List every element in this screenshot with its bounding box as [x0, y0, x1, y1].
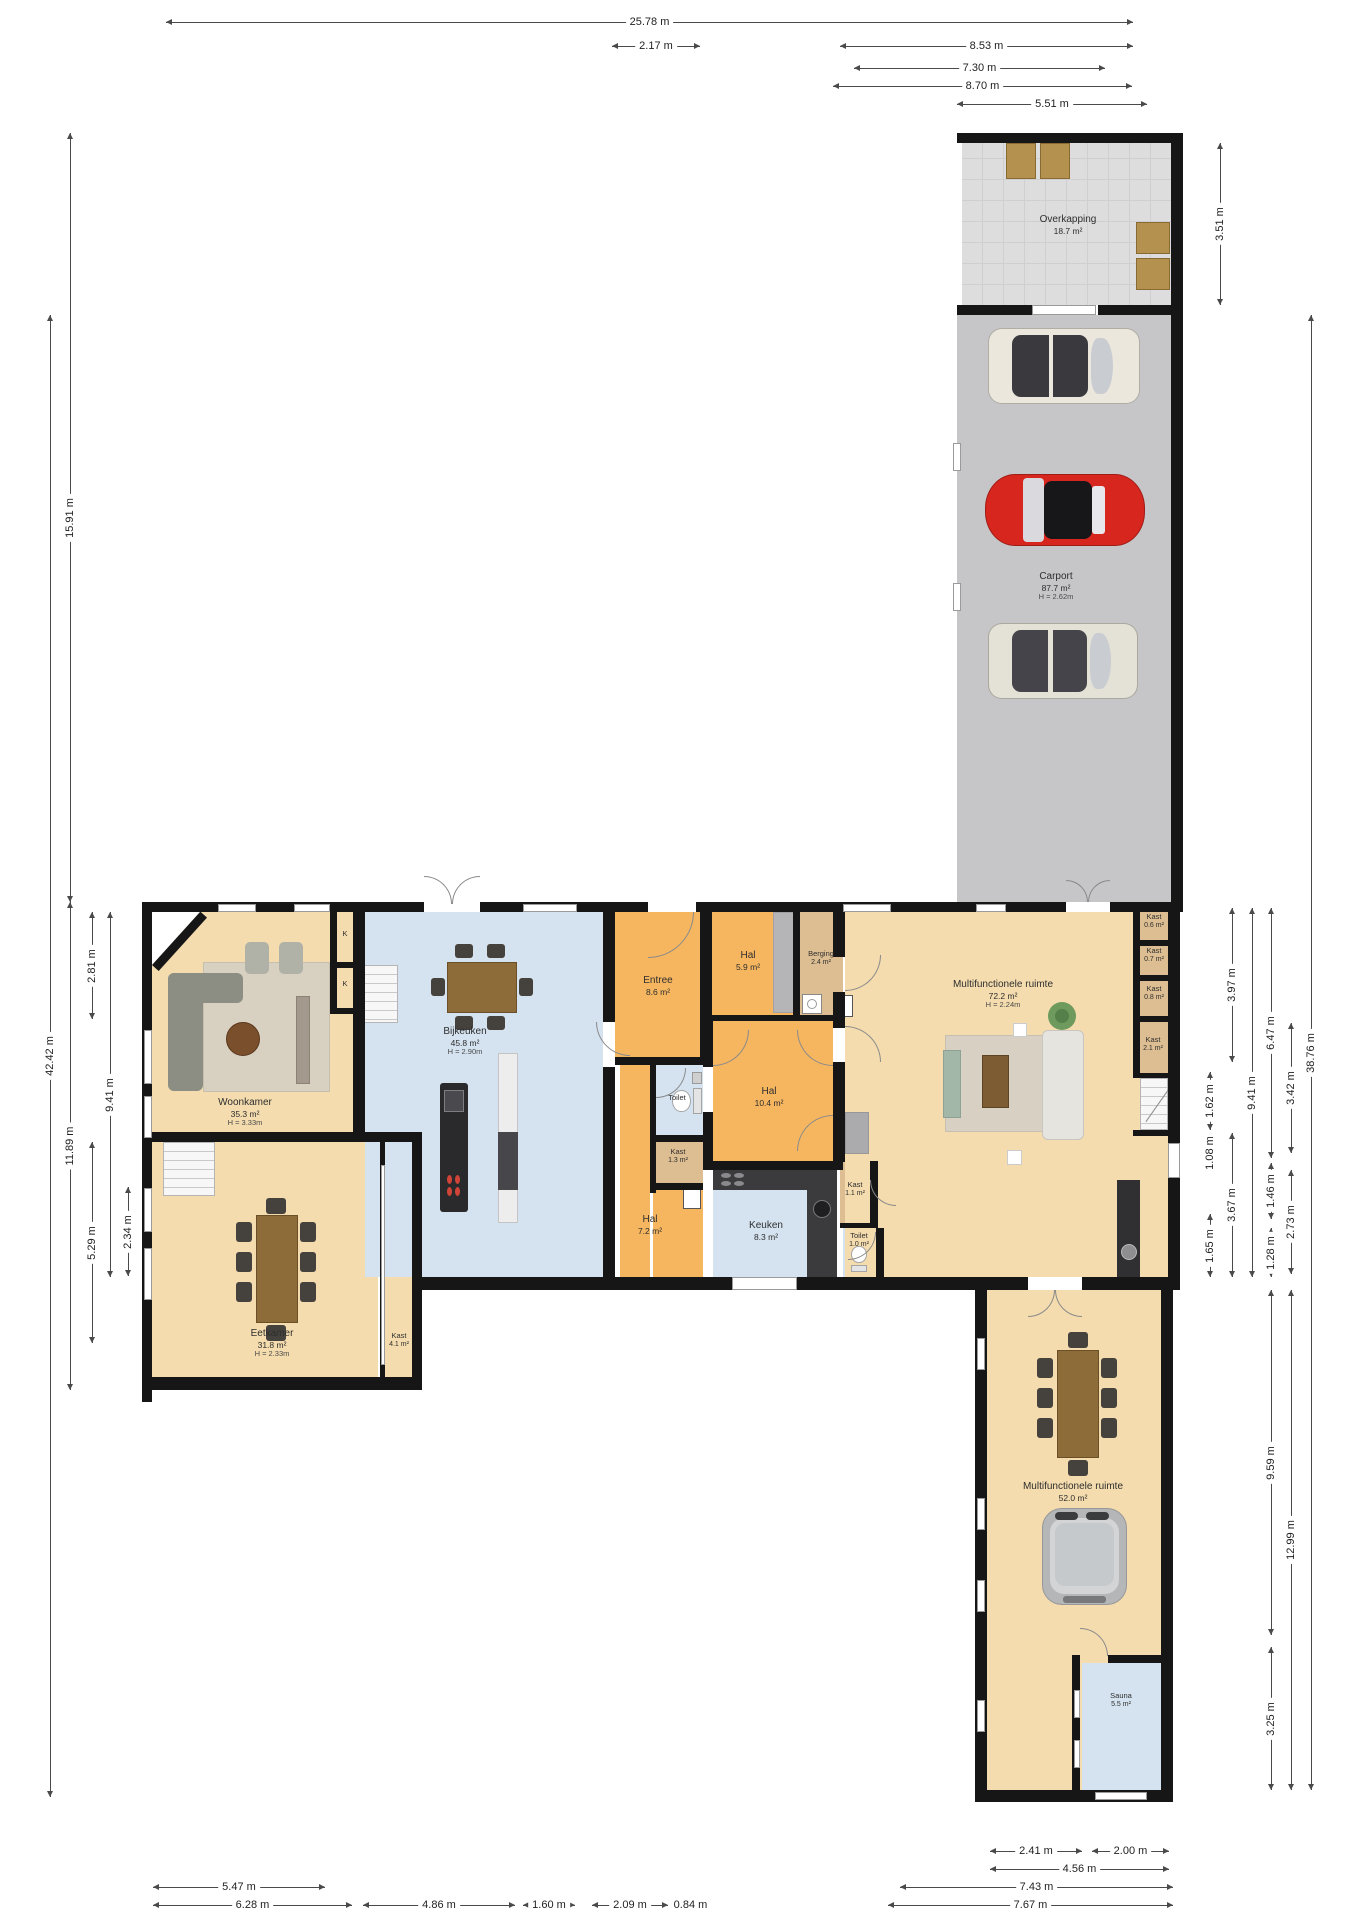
room-hal — [620, 1065, 650, 1277]
car-hood-band — [1023, 478, 1044, 541]
chair — [1068, 1460, 1088, 1476]
wall — [1108, 1655, 1161, 1663]
dimension-5.47m: 5.47 m — [153, 1880, 325, 1894]
dimension-label: 1.65 m — [1204, 1225, 1216, 1267]
wall — [840, 1223, 878, 1228]
room-area: 0.7 m² — [1144, 956, 1164, 964]
dimension-5.51m: 5.51 m — [957, 97, 1147, 111]
dimension-7.30m: 7.30 m — [854, 61, 1105, 75]
window — [976, 904, 1006, 912]
door-opening — [1028, 1277, 1082, 1290]
dimension-1.46m: 1.46 m — [1264, 1163, 1278, 1219]
chair — [300, 1252, 316, 1272]
room-ceiling-height: H = 2.24m — [953, 1001, 1053, 1010]
dimension-label: 4.86 m — [418, 1899, 460, 1911]
wood-crate — [1136, 258, 1170, 290]
room-ceiling-height: H = 2.90m — [443, 1048, 486, 1057]
window — [843, 904, 891, 912]
dimension-9.41m: 9.41 m — [1245, 908, 1259, 1277]
room-name: Kast — [389, 1332, 409, 1341]
dimension-label: 2.34 m — [122, 1211, 134, 1253]
hottub-headrest — [1055, 1512, 1078, 1521]
wall — [653, 1183, 703, 1190]
hottub-step — [1063, 1596, 1106, 1603]
chair — [519, 978, 533, 996]
wall — [412, 1277, 732, 1290]
chair — [431, 978, 445, 996]
room-label-carport: Carport87.7 m²H = 2.62m — [1039, 571, 1074, 602]
window — [977, 1700, 985, 1732]
room-name: Toilet — [849, 1232, 869, 1241]
window — [732, 1277, 797, 1290]
room-name: Bijkeuken — [443, 1026, 486, 1038]
room-name: Overkapping — [1040, 214, 1097, 226]
burner-dot — [721, 1173, 731, 1178]
room-name: Kast — [1144, 985, 1164, 994]
room-name: Multifunctionele ruimte — [953, 979, 1053, 991]
dimension-2.00m: 2.00 m — [1092, 1844, 1169, 1858]
dimension-label: 2.17 m — [635, 40, 677, 52]
burner-dot — [734, 1173, 744, 1178]
room-name: K — [342, 980, 347, 989]
room-name: Hal — [755, 1086, 784, 1098]
dimension-1.08m: 1.08 m — [1203, 1132, 1217, 1173]
dimension-label: 4.56 m — [1059, 1863, 1101, 1875]
wall — [1098, 305, 1171, 315]
dimension-4.86m: 4.86 m — [363, 1898, 515, 1912]
dimension-label: 1.46 m — [1265, 1170, 1277, 1212]
dimension-label: 5.47 m — [218, 1881, 260, 1893]
hottub-headrest — [1086, 1512, 1109, 1521]
car-roof-split — [1049, 335, 1054, 397]
room-area: 5.5 m² — [1110, 1701, 1132, 1709]
room-label-kast: Kast4.1 m² — [389, 1332, 409, 1349]
dimension-12.99m: 12.99 m — [1284, 1290, 1298, 1790]
room-label-toilet: Toilet — [668, 1094, 686, 1103]
dimension-2.73m: 2.73 m — [1284, 1170, 1298, 1274]
room-area: 0.8 m² — [1144, 994, 1164, 1002]
wall — [1072, 1663, 1080, 1790]
side-table — [1013, 1023, 1027, 1037]
room-name: Hal — [638, 1214, 662, 1226]
window — [1074, 1740, 1080, 1768]
dimension-label: 3.42 m — [1285, 1067, 1297, 1109]
wall — [703, 1015, 843, 1021]
window — [1074, 1690, 1080, 1718]
side-table — [1007, 1150, 1022, 1165]
room-label-multifunctionele-ruimte: Multifunctionele ruimte52.0 m² — [1023, 1481, 1123, 1503]
chair — [236, 1282, 252, 1302]
dimension-2.41m: 2.41 m — [990, 1844, 1082, 1858]
room-name: Kast — [1144, 913, 1164, 922]
room-label-kast: Kast1.1 m² — [845, 1181, 865, 1198]
chair — [1037, 1358, 1053, 1378]
dimension-label: 5.29 m — [86, 1222, 98, 1264]
dimension-label: 2.81 m — [86, 945, 98, 987]
dimension-3.25m: 3.25 m — [1264, 1647, 1278, 1790]
chair — [236, 1252, 252, 1272]
window — [144, 1248, 152, 1300]
door-arc — [424, 876, 452, 904]
dimension-label: 9.41 m — [1246, 1072, 1258, 1114]
wall — [142, 902, 152, 1402]
window — [381, 1165, 385, 1365]
wall — [1072, 1655, 1080, 1663]
wall — [142, 1132, 422, 1142]
hot-tub — [1042, 1508, 1127, 1605]
room-name: Keuken — [749, 1220, 783, 1232]
room-label-k: K — [342, 980, 347, 989]
burner-dot — [721, 1181, 731, 1186]
room-area: 0.6 m² — [1144, 922, 1164, 930]
door-arc — [452, 876, 480, 904]
dimension-label: 5.51 m — [1031, 98, 1073, 110]
counter-appliance — [498, 1132, 518, 1190]
dimension-1.28m: 1.28 m — [1264, 1228, 1278, 1277]
dining-table — [256, 1215, 298, 1323]
room-area: 5.9 m² — [736, 962, 760, 972]
room-name: Carport — [1039, 571, 1074, 583]
room-name: Multifunctionele ruimte — [1023, 1481, 1123, 1493]
wall — [833, 912, 845, 957]
dimension-2.09m: 2.09 m — [592, 1898, 668, 1912]
dimension-label: 15.91 m — [64, 494, 76, 542]
car-windshield — [1091, 338, 1112, 394]
wall — [1133, 912, 1140, 1078]
room-label-woonkamer: Woonkamer35.3 m²H = 3.33m — [218, 1097, 272, 1128]
door-opening — [648, 902, 696, 912]
dimension-8.53m: 8.53 m — [840, 39, 1133, 53]
car-roof-split — [1048, 630, 1053, 692]
wall — [703, 1021, 713, 1067]
chair — [1068, 1332, 1088, 1348]
room-label-hal: Hal5.9 m² — [736, 950, 760, 972]
chair — [487, 944, 505, 958]
dimension-7.67m: 7.67 m — [888, 1898, 1173, 1912]
closet-strip — [773, 912, 795, 1013]
dimension-1.65m: 1.65 m — [1203, 1214, 1217, 1277]
window — [953, 443, 961, 471]
window — [977, 1580, 985, 1612]
window — [977, 1338, 985, 1370]
white-suv — [988, 328, 1140, 404]
sofa — [168, 973, 243, 1003]
room-area: 1.1 m² — [845, 1190, 865, 1198]
room-area: 7.2 m² — [638, 1226, 662, 1236]
cooktop-burners — [446, 1174, 462, 1198]
dimension-label: 1.28 m — [1265, 1232, 1277, 1274]
dimension-label: 25.78 m — [626, 16, 674, 28]
dimension-6.47m: 6.47 m — [1264, 908, 1278, 1158]
red-classic-car — [985, 474, 1145, 546]
toilet-tank — [693, 1088, 702, 1113]
dimension-7.43m: 7.43 m — [900, 1880, 1173, 1894]
wall — [142, 1377, 422, 1390]
hand-basin — [692, 1072, 702, 1084]
chair — [236, 1222, 252, 1242]
room-ceiling-height: H = 3.33m — [218, 1119, 272, 1128]
dimension-label: 2.00 m — [1110, 1845, 1152, 1857]
room-name: Entree — [643, 975, 672, 987]
dimension-5.29m: 5.29 m — [85, 1142, 99, 1343]
wall — [957, 133, 1183, 143]
room-name: Hal — [736, 950, 760, 962]
dimension-9.59m: 9.59 m — [1264, 1290, 1278, 1635]
room-area: 2.1 m² — [1143, 1045, 1163, 1053]
dimension-label: 7.67 m — [1010, 1899, 1052, 1911]
room-area: 8.6 m² — [643, 987, 672, 997]
room-name: Kast — [1143, 1036, 1163, 1045]
stairs — [1140, 1078, 1168, 1130]
dimension-label: 0.84 m — [670, 1899, 712, 1911]
dimension-label: 1.62 m — [1204, 1080, 1216, 1122]
burner-dot — [447, 1187, 452, 1196]
room-name: Sauna — [1110, 1692, 1132, 1701]
washer — [802, 994, 822, 1014]
room-name: Woonkamer — [218, 1097, 272, 1109]
room-name: Kast — [1144, 947, 1164, 956]
chair — [300, 1222, 316, 1242]
dimension-3.67m: 3.67 m — [1225, 1133, 1239, 1277]
dimension-8.70m: 8.70 m — [833, 79, 1132, 93]
wall — [603, 912, 615, 1022]
window — [1032, 305, 1096, 315]
dimension-2.34m: 2.34 m — [121, 1187, 135, 1276]
window — [523, 904, 577, 912]
dimension-1.60m: 1.60 m — [523, 1898, 575, 1912]
wall — [615, 1057, 703, 1065]
daybed-sofa — [1042, 1030, 1084, 1140]
gas-cooktop — [720, 1172, 746, 1188]
dimension-9.41m: 9.41 m — [103, 912, 117, 1277]
room-area: 8.3 m² — [749, 1232, 783, 1242]
room-area: 2.4 m² — [808, 959, 834, 967]
room-label-entree: Entree8.6 m² — [643, 975, 672, 997]
room-ceiling-height: H = 2.62m — [1039, 593, 1074, 602]
dimension-2.81m: 2.81 m — [85, 912, 99, 1019]
dimension-label: 3.67 m — [1226, 1184, 1238, 1226]
dimension-label: 7.30 m — [959, 62, 1001, 74]
window — [1095, 1792, 1147, 1800]
wall — [412, 1132, 422, 1390]
burner-dot — [455, 1175, 460, 1184]
room-label-kast: Kast0.6 m² — [1144, 913, 1164, 930]
dimension-label: 6.47 m — [1265, 1012, 1277, 1054]
room-label-hal: Hal7.2 m² — [638, 1214, 662, 1236]
kitchen-sink — [813, 1200, 831, 1218]
wall — [353, 912, 365, 1142]
room-label-bijkeuken: Bijkeuken45.8 m²H = 2.90m — [443, 1026, 486, 1057]
room-name: Berging — [808, 950, 834, 959]
dimension-label: 7.43 m — [1016, 1881, 1058, 1893]
dimension-0.84m: 0.84 m — [676, 1898, 705, 1912]
chair — [1101, 1388, 1117, 1408]
coffee-table — [982, 1055, 1009, 1108]
chair — [1101, 1358, 1117, 1378]
wall — [876, 1228, 884, 1277]
dimension-3.42m: 3.42 m — [1284, 1023, 1298, 1153]
room-area: 10.4 m² — [755, 1098, 784, 1108]
tv-sideboard — [296, 996, 310, 1084]
dimension-6.28m: 6.28 m — [153, 1898, 352, 1912]
dimension-4.56m: 4.56 m — [990, 1862, 1169, 1876]
wall — [703, 1161, 843, 1170]
chair — [266, 1198, 286, 1214]
dimension-label: 1.08 m — [1204, 1132, 1216, 1174]
dimension-label: 8.70 m — [962, 80, 1004, 92]
dimension-label: 2.09 m — [609, 1899, 651, 1911]
silver-suv — [988, 623, 1138, 699]
wall — [703, 1112, 713, 1161]
chair — [1101, 1418, 1117, 1438]
wall — [957, 305, 1032, 315]
wall — [1140, 975, 1168, 981]
burner-dot — [734, 1181, 744, 1186]
wall — [1171, 133, 1183, 912]
coffee-table — [226, 1022, 260, 1056]
cabinet-gray — [845, 1112, 869, 1154]
dimension-label: 1.60 m — [528, 1899, 570, 1911]
wall — [1140, 1016, 1168, 1022]
stairs-diagonal — [1146, 1087, 1171, 1122]
dimension-label: 12.99 m — [1285, 1516, 1297, 1564]
car-windshield — [1090, 633, 1111, 689]
wall — [1168, 912, 1180, 1290]
dimension-11.89m: 11.89 m — [63, 902, 77, 1390]
room-name: K — [342, 930, 347, 939]
room-label-kast: Kast0.7 m² — [1144, 947, 1164, 964]
dimension-42.42m: 42.42 m — [43, 315, 57, 1797]
room-name: Kast — [668, 1148, 688, 1157]
window — [977, 1498, 985, 1530]
room-label-eetkamer: Eetkamer31.8 m²H = 2.33m — [251, 1328, 294, 1359]
dimension-label: 8.53 m — [966, 40, 1008, 52]
wood-crate — [1006, 143, 1036, 179]
dining-table — [447, 962, 517, 1013]
dimension-label: 9.41 m — [104, 1074, 116, 1116]
room-label-overkapping: Overkapping18.7 m² — [1040, 214, 1097, 236]
chair — [1037, 1388, 1053, 1408]
room-label-kast: Kast1.3 m² — [668, 1148, 688, 1165]
dimension-2.17m: 2.17 m — [612, 39, 700, 53]
dimension-25.78m: 25.78 m — [166, 15, 1133, 29]
window — [953, 583, 961, 611]
armchair — [279, 942, 303, 974]
dimension-label: 9.59 m — [1265, 1442, 1277, 1484]
door-opening — [1066, 902, 1110, 912]
dimension-label: 38.76 m — [1305, 1029, 1317, 1077]
wardrobe — [1117, 1180, 1140, 1277]
dining-table — [1057, 1350, 1099, 1458]
dimension-label: 6.28 m — [232, 1899, 274, 1911]
dimension-label: 2.41 m — [1015, 1845, 1057, 1857]
dimension-label: 3.25 m — [1265, 1698, 1277, 1740]
wood-crate — [1040, 143, 1070, 179]
room-name: Eetkamer — [251, 1328, 294, 1340]
room-area: 52.0 m² — [1023, 1493, 1123, 1503]
wall — [797, 1277, 1028, 1290]
room-name: Toilet — [668, 1094, 686, 1103]
chair — [1037, 1418, 1053, 1438]
dimension-3.51m: 3.51 m — [1213, 143, 1227, 305]
dimension-label: 42.42 m — [44, 1032, 56, 1080]
burner-dot — [447, 1175, 452, 1184]
room-area: 18.7 m² — [1040, 226, 1097, 236]
toilet-tank — [851, 1265, 868, 1272]
plant-inner — [1055, 1009, 1069, 1023]
room-label-kast: Kast2.1 m² — [1143, 1036, 1163, 1053]
car-cabin — [1044, 481, 1092, 539]
room-sauna — [1082, 1663, 1161, 1790]
stairs — [163, 1142, 215, 1196]
dimension-3.97m: 3.97 m — [1225, 908, 1239, 1062]
dimension-label: 3.97 m — [1226, 964, 1238, 1006]
room-name: Kast — [845, 1181, 865, 1190]
room-ceiling-height: H = 2.33m — [251, 1350, 294, 1359]
window — [144, 1030, 152, 1084]
room-label-kast: Kast0.8 m² — [1144, 985, 1164, 1002]
dimension-38.76m: 38.76 m — [1304, 315, 1318, 1790]
room-label-k: K — [342, 930, 347, 939]
wall — [1133, 1130, 1168, 1136]
window — [144, 1188, 152, 1232]
hottub-water — [1055, 1523, 1113, 1586]
wall — [1133, 1073, 1168, 1078]
floor-plan: Overkapping18.7 m²Carport87.7 m²H = 2.62… — [0, 0, 1358, 1920]
wall — [330, 1008, 353, 1014]
basin — [1121, 1244, 1137, 1260]
bench — [943, 1050, 961, 1118]
window — [294, 904, 330, 912]
wall — [603, 1067, 615, 1277]
window — [218, 904, 256, 912]
car-windshield — [1092, 486, 1105, 535]
wall — [793, 912, 800, 1015]
chair — [455, 944, 473, 958]
chair — [487, 1016, 505, 1030]
window — [144, 1096, 152, 1138]
wall — [1161, 1290, 1173, 1802]
wall — [833, 992, 845, 1028]
dimension-label: 3.51 m — [1214, 203, 1226, 245]
wall — [653, 1135, 703, 1142]
room-label-sauna: Sauna5.5 m² — [1110, 1692, 1132, 1709]
room-area: 1.0 m² — [849, 1241, 869, 1249]
washer-drum — [807, 999, 818, 1010]
wood-crate — [1136, 222, 1170, 254]
room-label-hal: Hal10.4 m² — [755, 1086, 784, 1108]
room-label-multifunctionele-ruimte: Multifunctionele ruimte72.2 m²H = 2.24m — [953, 979, 1053, 1010]
burner-dot — [455, 1187, 460, 1196]
island-sink — [444, 1090, 464, 1112]
room-label-keuken: Keuken8.3 m² — [749, 1220, 783, 1242]
dimension-1.62m: 1.62 m — [1203, 1072, 1217, 1130]
wall — [1082, 1277, 1180, 1290]
armchair — [245, 942, 269, 974]
room-area: 1.3 m² — [668, 1157, 688, 1165]
wall — [330, 962, 353, 968]
window — [1168, 1143, 1180, 1178]
room-label-berging: Berging2.4 m² — [808, 950, 834, 967]
dimension-label: 11.89 m — [64, 1123, 76, 1170]
chair — [300, 1282, 316, 1302]
stairs — [363, 965, 398, 1023]
dimension-label: 2.73 m — [1285, 1201, 1297, 1243]
room-area: 4.1 m² — [389, 1341, 409, 1349]
dimension-15.91m: 15.91 m — [63, 133, 77, 902]
wall — [833, 1062, 845, 1162]
room-label-toilet: Toilet1.0 m² — [849, 1232, 869, 1249]
